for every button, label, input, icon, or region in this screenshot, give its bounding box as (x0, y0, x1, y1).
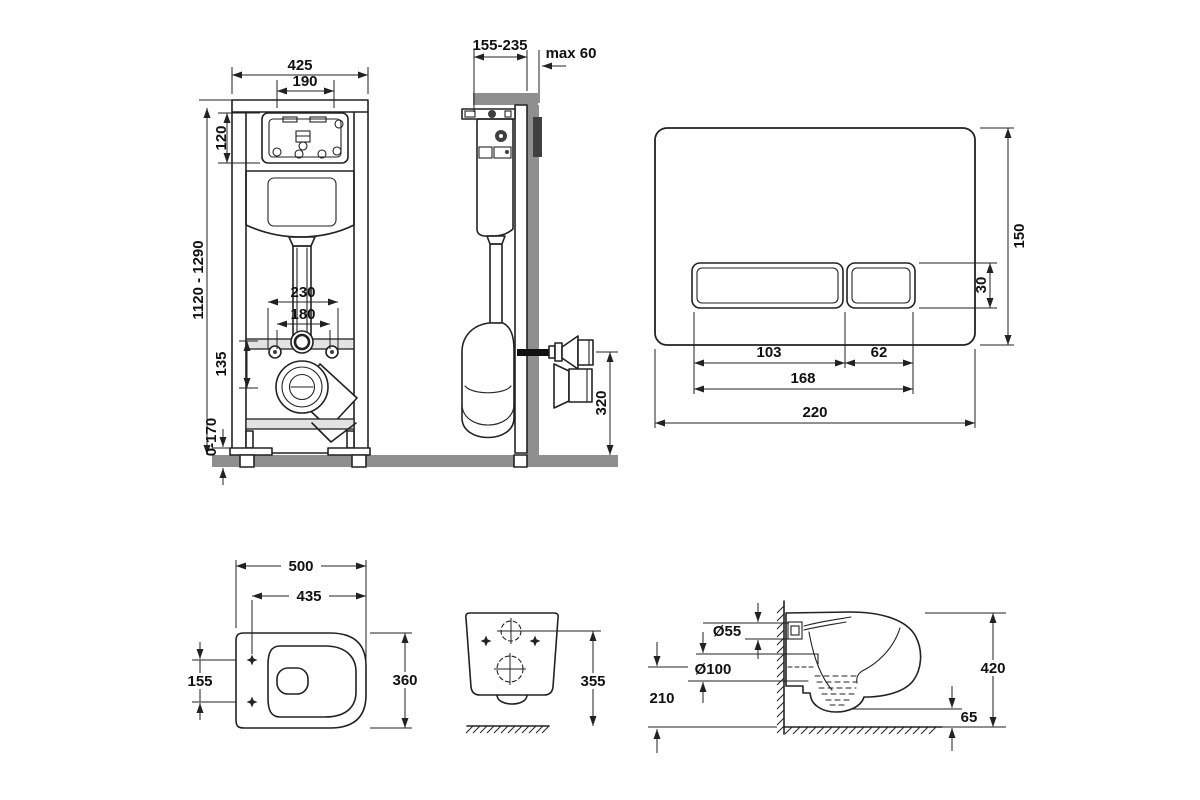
bowl-rear-outline (466, 613, 558, 695)
floor-hatch-rear (466, 726, 549, 733)
top-fixing-bracket (473, 93, 538, 105)
trap-elbow (462, 323, 514, 438)
bowl-top-outline (236, 633, 366, 728)
flush-plate-outline (655, 128, 975, 345)
bowl-side-outline (786, 612, 921, 712)
flush-button-small (847, 263, 915, 308)
wall-hatch-side (777, 601, 784, 734)
dim-frame-width-label: 425 (287, 57, 312, 74)
dim-bowl-width-label: 360 (392, 672, 417, 689)
dim-bolts-inner-label: 180 (290, 306, 315, 323)
dim-inlet-dia-label: Ø55 (713, 623, 741, 640)
bowl-rear-dimensions: 355 (523, 631, 611, 726)
bowl-seat-contour (268, 646, 356, 717)
flush-buttons (692, 263, 915, 308)
bowl-side-view: Ø55 Ø100 210 420 65 (648, 601, 1011, 753)
dim-bowl-rear-height-label: 355 (580, 673, 605, 690)
frame-front-view: 425 190 120 1120 - 1290 230 180 135 (190, 57, 370, 485)
dim-bolts-outer-label: 230 (290, 284, 315, 301)
bowl-top-dimensions: 500 435 155 360 (183, 558, 423, 728)
dim-frame-height-label: 1120 - 1290 (190, 240, 207, 319)
threaded-rod (517, 349, 549, 356)
bowl-top-view: 500 435 155 360 (183, 558, 423, 728)
water-level-hatch (815, 676, 858, 705)
bowl-side-dimensions: Ø55 Ø100 210 420 65 (648, 603, 1011, 753)
dim-button-left-label: 103 (756, 344, 781, 361)
bowl-drain-opening (277, 668, 308, 694)
cistern-side (462, 109, 515, 323)
frame-side-view: 155-235 max 60 320 (462, 37, 618, 467)
dim-bowl-inner-length-label: 435 (296, 588, 321, 605)
dim-foot-adjust-label: 0-170 (203, 418, 220, 456)
floor-slab (212, 455, 618, 467)
flush-plate-dimensions: 150 30 103 62 168 220 (655, 128, 1028, 428)
finished-wall (527, 105, 539, 455)
mount-hole-marker (481, 636, 492, 647)
mount-hole-marker (247, 697, 258, 708)
dim-bowl-length-label: 500 (288, 558, 313, 575)
mount-hole-marker (247, 655, 258, 666)
drain-bend (246, 361, 357, 442)
dim-clearance-label: 65 (961, 709, 978, 726)
dim-drain-drop-label: 135 (213, 351, 230, 376)
dim-outlet-dia-label: Ø100 (695, 661, 732, 678)
dim-plate-width-label: 220 (802, 404, 827, 421)
dim-plate-height-label: 150 (1011, 223, 1028, 248)
flush-plate-side (533, 117, 542, 157)
inspection-opening (262, 113, 348, 163)
dim-buttons-width-label: 168 (790, 370, 815, 387)
flush-button-large (692, 263, 843, 308)
dim-opening-height-label: 120 (213, 125, 230, 150)
floor-hatch-side (784, 727, 942, 734)
inlet-connector (562, 336, 578, 369)
dim-outlet-height-side-label: 210 (649, 690, 674, 707)
dim-depth-range-label: 155-235 (472, 37, 527, 54)
dim-opening-width-label: 190 (292, 73, 317, 90)
bowl-rear-view: 355 (466, 613, 611, 733)
dim-button-right-label: 62 (871, 344, 888, 361)
dim-hole-spacing-label: 155 (187, 673, 212, 690)
dim-button-height-label: 30 (973, 277, 990, 294)
flush-plate-view: 150 30 103 62 168 220 (655, 128, 1028, 428)
outlet-connector (554, 364, 569, 408)
dim-outlet-height-label: 320 (593, 390, 610, 415)
mount-hole-marker (530, 636, 541, 647)
inlet-pipe-side (788, 622, 802, 639)
installation-drawing: 425 190 120 1120 - 1290 230 180 135 (0, 0, 1200, 800)
technical-drawing-page: 425 190 120 1120 - 1290 230 180 135 (0, 0, 1200, 800)
frame-rail-side (515, 105, 527, 453)
dim-wall-max-label: max 60 (546, 45, 597, 62)
dim-rim-height-label: 420 (980, 660, 1005, 677)
